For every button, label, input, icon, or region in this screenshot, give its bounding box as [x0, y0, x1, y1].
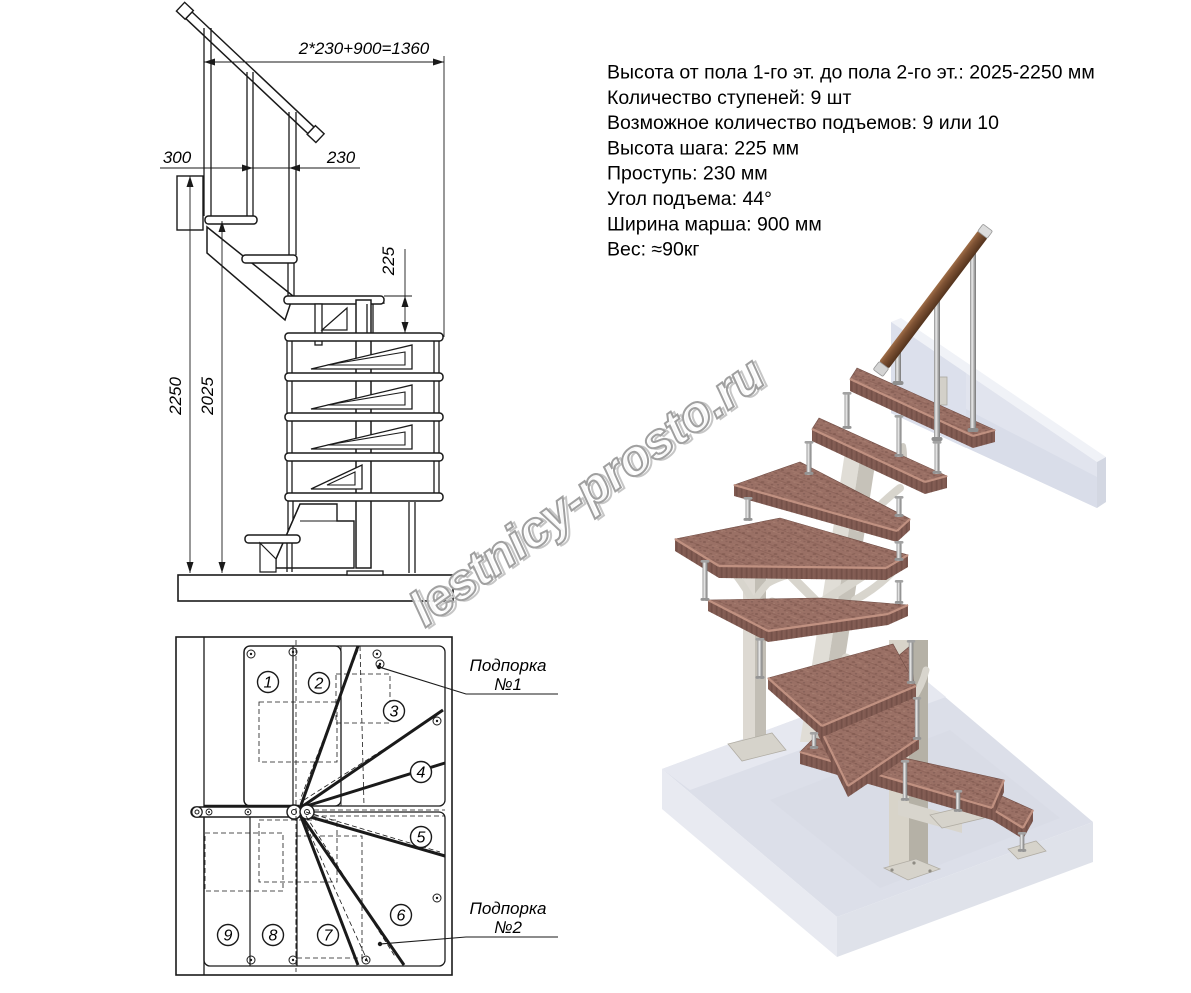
svg-text:Возможное количество подъемов:: Возможное количество подъемов: 9 или 10: [607, 112, 999, 134]
svg-text:225: 225: [379, 246, 398, 276]
svg-text:6: 6: [397, 908, 406, 925]
svg-text:Подпорка: Подпорка: [470, 899, 547, 918]
svg-text:Высота шага: 225 мм: Высота шага: 225 мм: [607, 137, 799, 159]
svg-text:2*230+900=1360: 2*230+900=1360: [298, 39, 430, 58]
svg-text:Количество ступеней: 9 шт: Количество ступеней: 9 шт: [607, 87, 851, 109]
svg-text:Угол подъема: 44°: Угол подъема: 44°: [607, 188, 772, 210]
svg-text:Ширина марша: 900 мм: Ширина марша: 900 мм: [607, 213, 822, 235]
svg-text:7: 7: [324, 928, 334, 945]
svg-text:Проступь: 230 мм: Проступь: 230 мм: [607, 163, 768, 185]
svg-text:5: 5: [417, 830, 426, 847]
svg-text:300: 300: [163, 148, 192, 167]
svg-text:Вес: ≈90кг: Вес: ≈90кг: [607, 239, 699, 261]
svg-text:4: 4: [417, 765, 426, 782]
svg-text:9: 9: [224, 928, 233, 945]
svg-text:1: 1: [264, 675, 273, 692]
svg-text:2025: 2025: [198, 377, 217, 416]
svg-text:№1: №1: [494, 675, 522, 694]
svg-text:№2: №2: [494, 918, 522, 937]
svg-text:2: 2: [314, 676, 324, 693]
svg-text:8: 8: [269, 928, 278, 945]
svg-text:230: 230: [326, 148, 356, 167]
svg-text:Высота от пола 1-го эт. до пол: Высота от пола 1-го эт. до пола 2-го эт.…: [607, 62, 1095, 84]
svg-text:2250: 2250: [166, 377, 185, 416]
svg-text:Подпорка: Подпорка: [470, 656, 547, 675]
svg-text:3: 3: [390, 704, 399, 721]
